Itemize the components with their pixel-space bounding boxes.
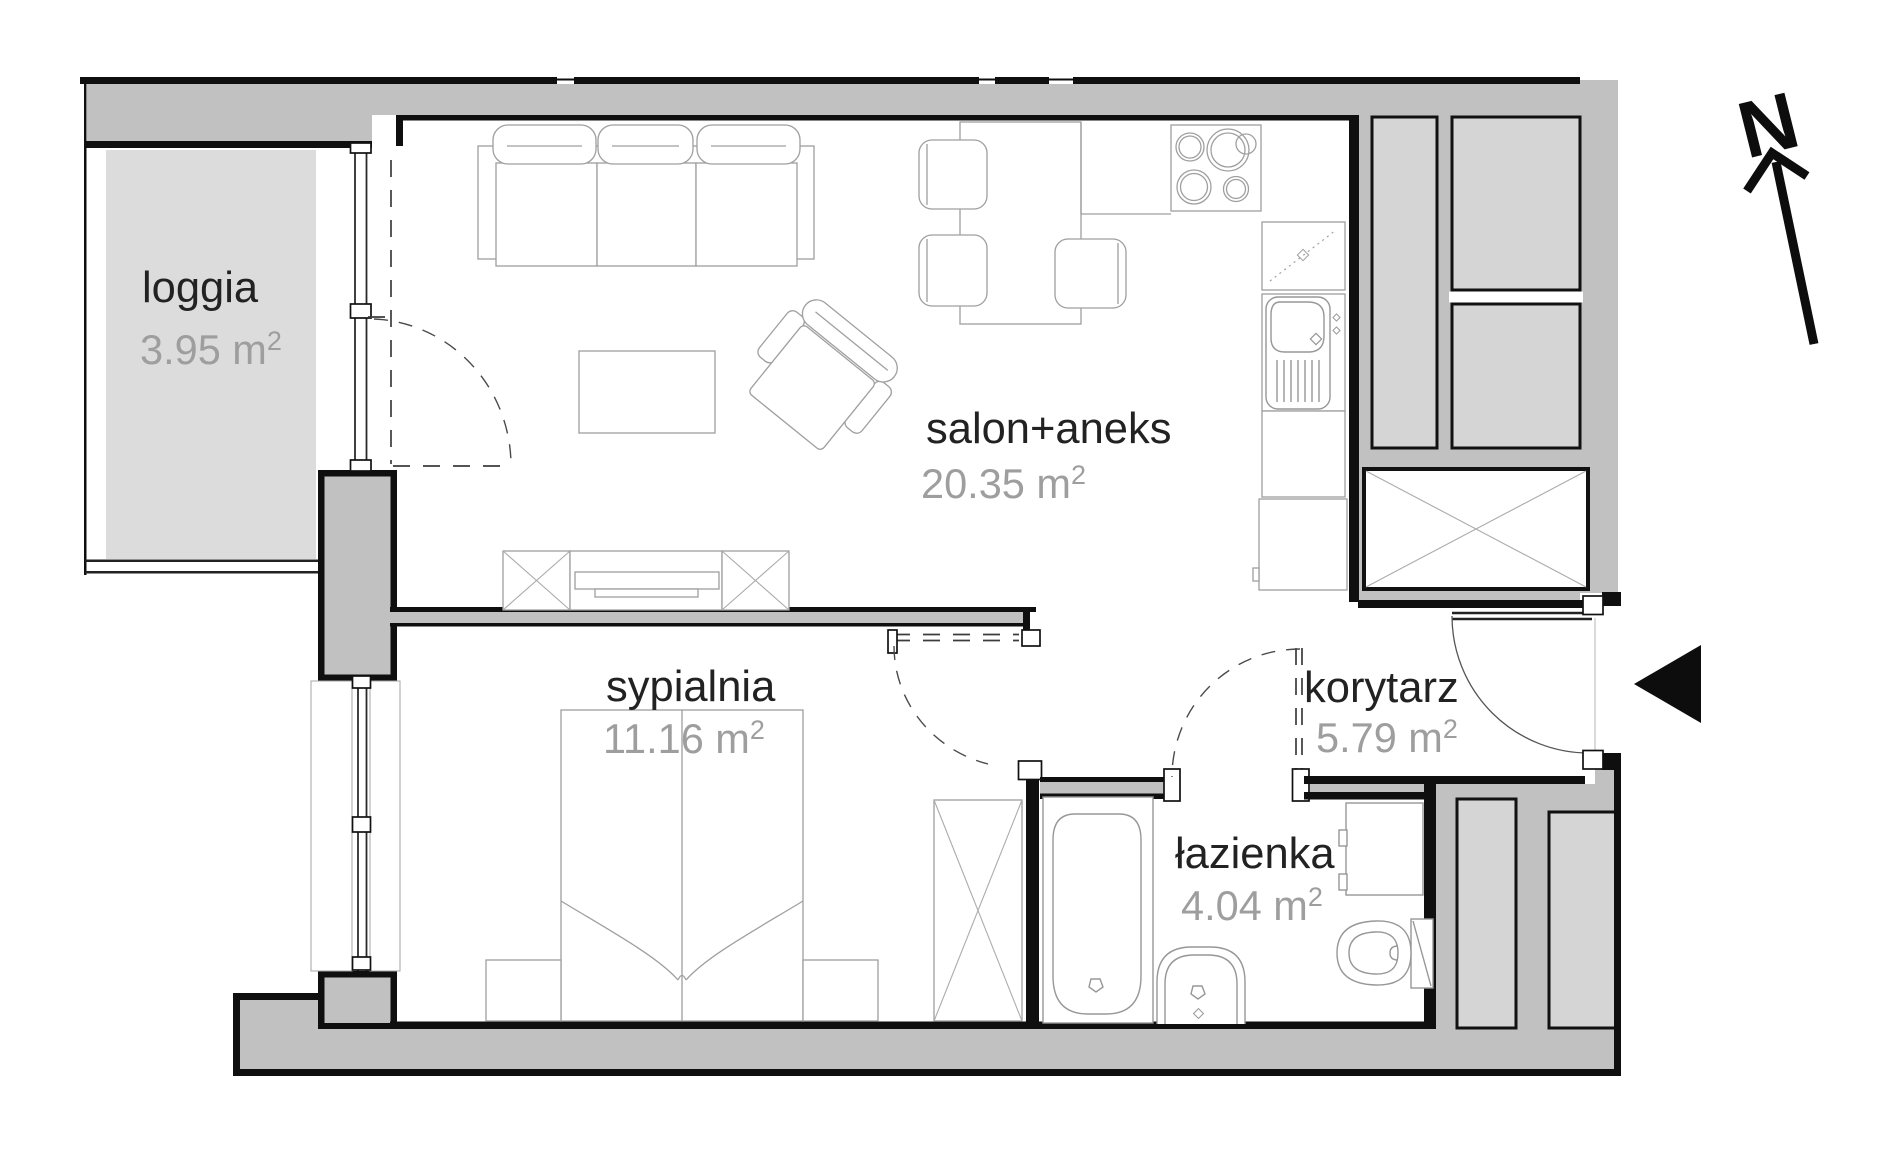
svg-text:korytarz: korytarz (1304, 664, 1459, 712)
svg-text:łazienka: łazienka (1175, 830, 1335, 878)
svg-text:5.79 m2: 5.79 m2 (1316, 714, 1458, 761)
svg-text:loggia: loggia (142, 264, 259, 312)
svg-text:11.16 m2: 11.16 m2 (603, 715, 765, 762)
svg-text:salon+aneks: salon+aneks (926, 405, 1171, 453)
svg-text:3.95 m2: 3.95 m2 (140, 326, 282, 373)
svg-text:4.04 m2: 4.04 m2 (1181, 882, 1323, 929)
svg-text:20.35 m2: 20.35 m2 (921, 460, 1086, 507)
svg-text:sypialnia: sypialnia (606, 663, 776, 711)
